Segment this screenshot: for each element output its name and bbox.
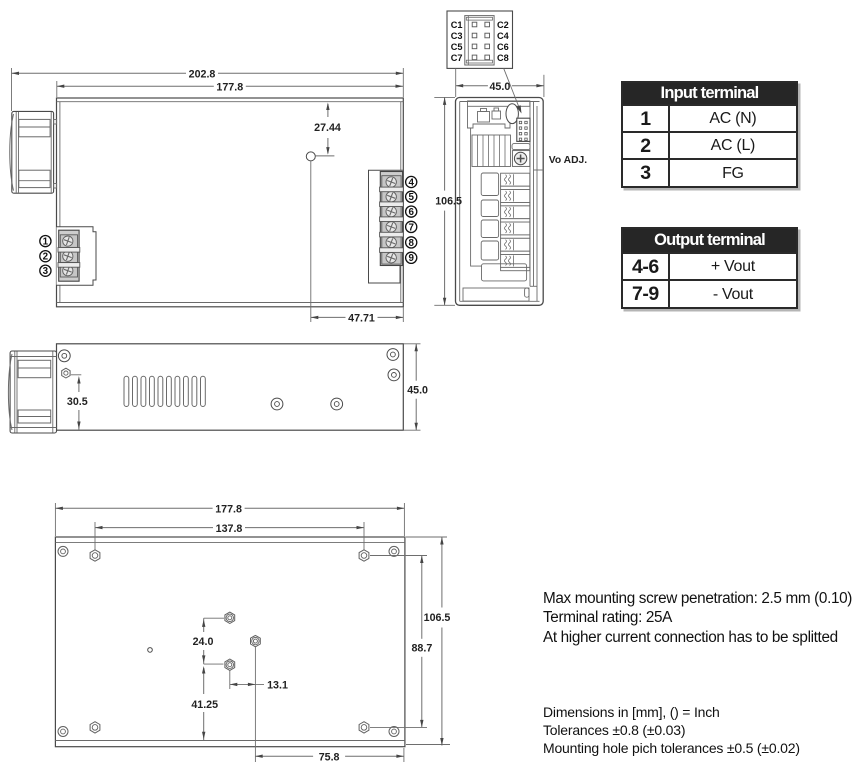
svg-text:C7: C7: [451, 53, 463, 63]
svg-text:27.44: 27.44: [314, 122, 341, 134]
svg-text:75.8: 75.8: [319, 751, 340, 763]
svg-text:202.8: 202.8: [189, 69, 216, 81]
svg-text:106.5: 106.5: [435, 195, 462, 207]
svg-text:Vo ADJ.: Vo ADJ.: [549, 155, 587, 166]
svg-text:C4: C4: [497, 31, 510, 41]
svg-text:3: 3: [43, 266, 49, 277]
svg-text:5: 5: [408, 192, 414, 203]
svg-text:88.7: 88.7: [411, 643, 432, 655]
svg-text:47.71: 47.71: [348, 313, 375, 325]
svg-text:13.1: 13.1: [267, 679, 288, 691]
svg-text:C3: C3: [451, 31, 463, 41]
svg-text:9: 9: [408, 253, 414, 264]
svg-text:41.25: 41.25: [191, 699, 218, 711]
svg-text:8: 8: [408, 238, 414, 249]
svg-text:C8: C8: [497, 53, 509, 63]
svg-text:45.0: 45.0: [489, 81, 510, 93]
svg-text:24.0: 24.0: [193, 636, 214, 648]
svg-text:177.8: 177.8: [216, 81, 243, 93]
svg-text:45.0: 45.0: [407, 384, 428, 396]
svg-text:6: 6: [408, 207, 414, 218]
svg-text:30.5: 30.5: [67, 396, 88, 408]
svg-text:7: 7: [408, 222, 414, 233]
svg-text:2: 2: [43, 252, 49, 263]
svg-text:137.8: 137.8: [216, 523, 243, 535]
svg-text:C5: C5: [451, 42, 463, 52]
svg-text:C2: C2: [497, 20, 509, 30]
svg-text:C1: C1: [451, 20, 463, 30]
svg-text:106.5: 106.5: [424, 612, 451, 624]
svg-text:177.8: 177.8: [215, 504, 242, 516]
svg-text:1: 1: [43, 237, 49, 248]
svg-text:C6: C6: [497, 42, 509, 52]
svg-text:4: 4: [408, 177, 414, 188]
